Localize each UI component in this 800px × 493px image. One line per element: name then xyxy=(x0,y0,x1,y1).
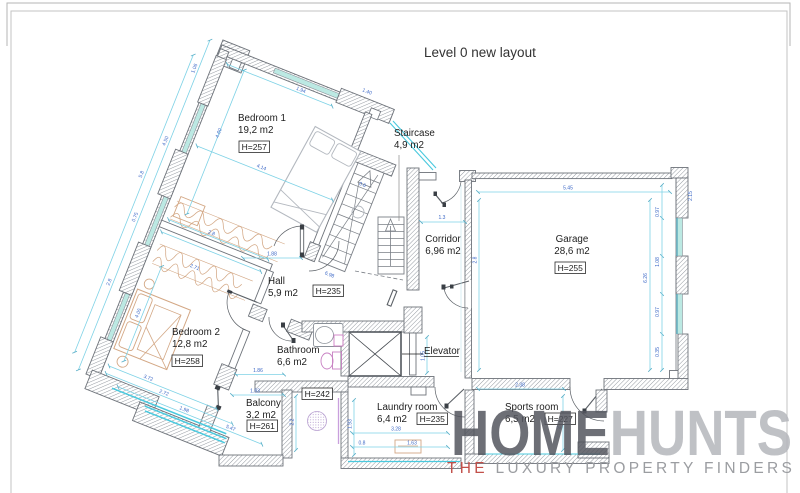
svg-text:2.38: 2.38 xyxy=(515,383,525,389)
svg-text:H=235: H=235 xyxy=(420,414,446,424)
svg-text:H=235: H=235 xyxy=(316,286,342,296)
svg-text:H=257: H=257 xyxy=(242,142,268,152)
svg-text:1.88: 1.88 xyxy=(267,252,277,258)
svg-text:HOMEHUNTS: HOMEHUNTS xyxy=(451,398,792,469)
svg-text:12,8 m2: 12,8 m2 xyxy=(172,339,207,350)
svg-text:H=258: H=258 xyxy=(175,356,201,366)
svg-text:19,2 m2: 19,2 m2 xyxy=(238,125,273,136)
svg-text:Level 0 new layout: Level 0 new layout xyxy=(424,45,536,60)
svg-text:Laundry room: Laundry room xyxy=(377,402,437,413)
svg-text:5,9 m2: 5,9 m2 xyxy=(268,288,298,299)
svg-text:Staircase: Staircase xyxy=(394,128,435,139)
svg-text:1.3: 1.3 xyxy=(439,215,446,221)
svg-text:THE LUXURY PROPERTY FINDERS: THE LUXURY PROPERTY FINDERS xyxy=(447,460,795,477)
svg-text:Garage: Garage xyxy=(556,234,589,245)
svg-text:0.8: 0.8 xyxy=(359,441,366,447)
svg-text:1.93: 1.93 xyxy=(250,389,260,395)
svg-text:1.63: 1.63 xyxy=(407,441,417,447)
svg-text:0.97: 0.97 xyxy=(655,307,661,317)
svg-text:0.35: 0.35 xyxy=(655,347,661,357)
svg-text:Bedroom 2: Bedroom 2 xyxy=(172,327,220,338)
svg-text:28,6 m2: 28,6 m2 xyxy=(554,246,589,257)
svg-text:6.26: 6.26 xyxy=(643,273,649,283)
svg-text:0.97: 0.97 xyxy=(655,207,661,217)
svg-text:3,2 m2: 3,2 m2 xyxy=(246,410,276,421)
svg-text:1.86: 1.86 xyxy=(253,368,263,374)
svg-text:H=255: H=255 xyxy=(558,263,584,273)
svg-text:Corridor: Corridor xyxy=(425,234,461,245)
svg-text:Hall: Hall xyxy=(268,276,285,287)
svg-text:5.45: 5.45 xyxy=(563,186,573,192)
svg-text:H=261: H=261 xyxy=(250,421,276,431)
svg-text:3.28: 3.28 xyxy=(391,427,401,433)
svg-text:1.08: 1.08 xyxy=(655,257,661,267)
svg-text:2.2: 2.2 xyxy=(290,418,296,425)
svg-text:Elevator: Elevator xyxy=(424,346,461,357)
svg-text:2.15: 2.15 xyxy=(688,191,694,201)
svg-text:H=242: H=242 xyxy=(305,389,331,399)
svg-text:Bedroom 1: Bedroom 1 xyxy=(238,113,286,124)
svg-text:4,9 m2: 4,9 m2 xyxy=(394,140,424,151)
svg-text:6,96 m2: 6,96 m2 xyxy=(425,246,460,257)
svg-text:6,6 m2: 6,6 m2 xyxy=(277,357,307,368)
svg-text:Bathroom: Bathroom xyxy=(277,345,319,356)
svg-text:1.93: 1.93 xyxy=(348,419,354,429)
svg-text:6,4 m2: 6,4 m2 xyxy=(377,414,407,425)
svg-text:2.8: 2.8 xyxy=(473,256,479,263)
svg-text:Balcony: Balcony xyxy=(246,398,281,409)
